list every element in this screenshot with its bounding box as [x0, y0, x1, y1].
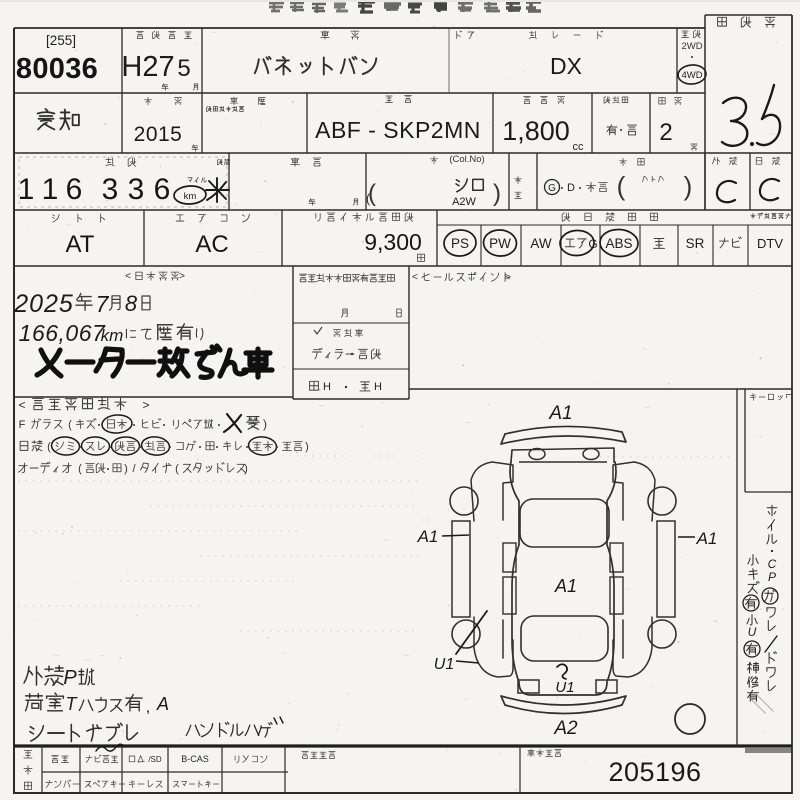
- svg-text:(Col.No): (Col.No): [449, 154, 484, 165]
- svg-text:(: (: [617, 171, 626, 201]
- svg-text:205196: 205196: [608, 757, 701, 787]
- svg-text:2025: 2025: [13, 290, 74, 318]
- svg-text:): ): [493, 180, 501, 207]
- svg-text:>: >: [505, 271, 511, 283]
- svg-text:DX: DX: [550, 53, 582, 79]
- svg-text:H27: H27: [121, 51, 174, 83]
- svg-text:9,300: 9,300: [364, 229, 422, 255]
- svg-text:B-CAS: B-CAS: [181, 754, 209, 764]
- svg-text:AT: AT: [66, 231, 95, 258]
- svg-text:(: (: [68, 419, 72, 431]
- svg-text:<: <: [18, 398, 25, 412]
- svg-text:(: (: [368, 180, 376, 207]
- svg-text:4WD: 4WD: [681, 70, 702, 81]
- svg-text:D: D: [567, 182, 575, 194]
- svg-text:3: 3: [102, 173, 119, 206]
- svg-text:C: C: [768, 557, 777, 571]
- svg-text:AW: AW: [530, 236, 552, 251]
- svg-text:>: >: [142, 398, 149, 412]
- svg-text:A1: A1: [696, 529, 718, 548]
- svg-text:8: 8: [125, 291, 138, 316]
- svg-text:SR: SR: [686, 236, 705, 251]
- svg-text:): ): [684, 171, 693, 201]
- svg-text:ABF - SKP2MN: ABF - SKP2MN: [315, 117, 481, 143]
- svg-text:): ): [263, 417, 267, 431]
- svg-text:A1: A1: [554, 576, 577, 596]
- svg-text:7: 7: [96, 291, 110, 317]
- svg-text:A2W: A2W: [452, 196, 476, 208]
- svg-text:): ): [305, 441, 309, 453]
- svg-text:PS: PS: [451, 236, 469, 251]
- svg-text:1: 1: [18, 173, 35, 206]
- svg-text:1,800: 1,800: [502, 116, 570, 146]
- svg-text:U1: U1: [434, 656, 454, 673]
- svg-text:2: 2: [659, 119, 672, 146]
- svg-text:3: 3: [128, 173, 145, 206]
- svg-text:U: U: [748, 625, 757, 639]
- svg-text:A1: A1: [417, 527, 439, 546]
- svg-text:A: A: [156, 694, 169, 714]
- svg-text:A2: A2: [553, 718, 578, 739]
- svg-text:6: 6: [66, 173, 83, 206]
- svg-text:80036: 80036: [16, 53, 98, 85]
- svg-text:166,067: 166,067: [19, 320, 106, 346]
- svg-text:P: P: [768, 570, 776, 584]
- svg-text:2015: 2015: [134, 123, 183, 146]
- svg-text:(: (: [78, 463, 82, 475]
- svg-text:F: F: [19, 419, 26, 431]
- svg-text:H: H: [323, 381, 331, 393]
- svg-text:,: ,: [146, 699, 150, 716]
- svg-text:ABS: ABS: [605, 236, 632, 251]
- svg-text:/SD: /SD: [148, 755, 162, 764]
- svg-text:): ): [124, 463, 128, 475]
- svg-text:5: 5: [177, 55, 190, 82]
- svg-text:km: km: [184, 191, 197, 202]
- svg-text:G: G: [548, 183, 556, 194]
- svg-text:<: <: [412, 271, 418, 283]
- svg-text:PW: PW: [489, 236, 511, 251]
- svg-text:H: H: [374, 381, 382, 393]
- svg-text:km: km: [101, 326, 124, 345]
- svg-text:2WD: 2WD: [681, 41, 702, 52]
- svg-text:A1: A1: [548, 403, 572, 424]
- svg-text:(: (: [47, 441, 51, 453]
- svg-text:P: P: [63, 667, 77, 689]
- svg-text:[255]: [255]: [46, 33, 76, 48]
- svg-text:1: 1: [42, 173, 59, 206]
- svg-text:DTV: DTV: [757, 236, 783, 251]
- svg-text:cc: cc: [573, 141, 585, 153]
- svg-text:(: (: [175, 463, 179, 475]
- svg-text:6: 6: [154, 173, 171, 206]
- svg-text:): ): [244, 463, 248, 475]
- svg-text:U1: U1: [555, 679, 574, 696]
- svg-text:>: >: [179, 271, 185, 282]
- svg-text:AC: AC: [195, 231, 228, 258]
- svg-text:<: <: [125, 271, 131, 282]
